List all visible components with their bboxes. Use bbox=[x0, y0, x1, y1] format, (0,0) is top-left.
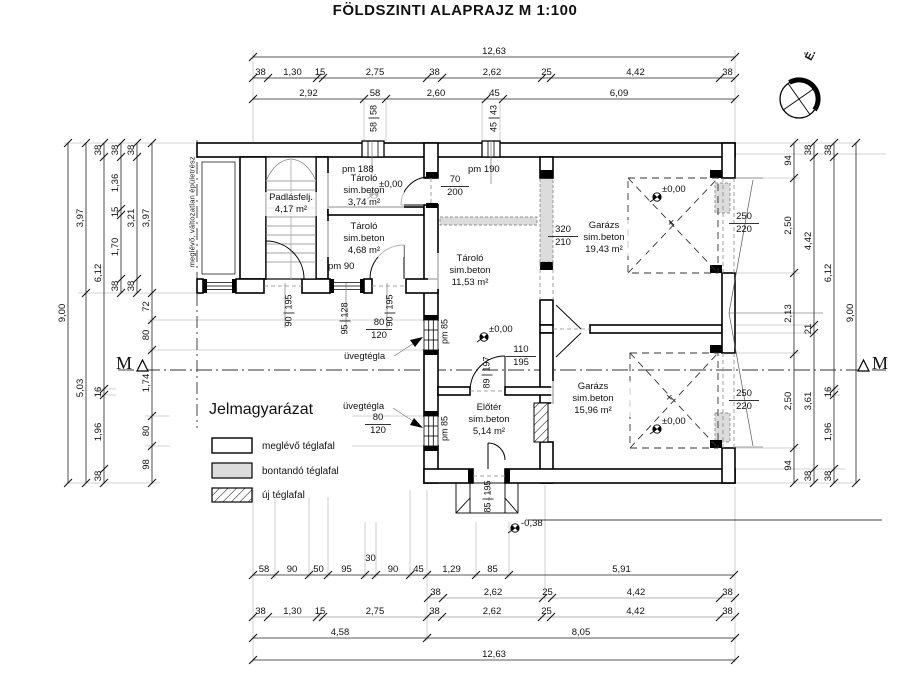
svg-text:38: 38 bbox=[429, 67, 440, 78]
level-zero-tarolo374: ±0,00 bbox=[379, 179, 403, 190]
opening-80-120-lower: 80 120 bbox=[365, 413, 391, 437]
room-eloter: Előtér sim.beton 5,14 m² bbox=[447, 402, 531, 438]
opening-250-220-lower: 250 220 bbox=[729, 389, 759, 413]
room-padlasfeljaro: Padlásfelj. 4,17 m² bbox=[258, 192, 324, 216]
svg-text:38: 38 bbox=[722, 67, 733, 78]
door-90-195-left: 90 195 bbox=[284, 293, 295, 329]
svg-text:3,97: 3,97 bbox=[141, 209, 152, 228]
level-zero-tarolo1153: ±0,00 bbox=[489, 324, 513, 335]
svg-text:1,74: 1,74 bbox=[141, 374, 152, 393]
floor-plan-sheet: 12,63381,30152,75382,62254,42382,92582,6… bbox=[0, 0, 909, 687]
svg-text:38: 38 bbox=[803, 145, 814, 156]
page-title: FÖLDSZINTI ALAPRAJZ M 1:100 bbox=[235, 2, 675, 20]
svg-text:16: 16 bbox=[823, 387, 834, 398]
svg-text:45: 45 bbox=[489, 88, 500, 99]
note-pm90: pm 90 bbox=[328, 261, 354, 272]
svg-text:2,60: 2,60 bbox=[427, 88, 446, 99]
svg-text:6,09: 6,09 bbox=[610, 88, 629, 99]
svg-text:45: 45 bbox=[413, 564, 424, 575]
note-pm190: pm 190 bbox=[468, 164, 500, 175]
legend-item-demolish: bontandó téglafal bbox=[262, 466, 339, 478]
svg-text:4,58: 4,58 bbox=[331, 627, 350, 638]
existing-building-note: meglévő, változatlan épületrész bbox=[188, 146, 196, 278]
svg-text:80: 80 bbox=[141, 426, 152, 437]
note-pm85-lower: pm 85 bbox=[441, 409, 450, 449]
legend-swatches bbox=[211, 437, 255, 503]
svg-text:90: 90 bbox=[287, 564, 298, 575]
svg-text:98: 98 bbox=[141, 459, 152, 470]
note-uvegtegla-1: üvegtégla bbox=[344, 351, 385, 362]
svg-text:50: 50 bbox=[313, 564, 324, 575]
svg-text:3,97: 3,97 bbox=[75, 209, 86, 228]
svg-text:94: 94 bbox=[783, 460, 794, 471]
svg-text:25: 25 bbox=[541, 606, 552, 617]
svg-text:1,30: 1,30 bbox=[283, 67, 302, 78]
svg-text:21: 21 bbox=[803, 324, 814, 335]
svg-text:1,96: 1,96 bbox=[823, 423, 834, 442]
svg-text:38: 38 bbox=[823, 145, 834, 156]
svg-text:38: 38 bbox=[93, 145, 104, 156]
svg-text:12,63: 12,63 bbox=[482, 46, 506, 57]
svg-text:4,42: 4,42 bbox=[626, 606, 645, 617]
level-zero-garazs1943: ±0,00 bbox=[662, 184, 686, 195]
window-glazing-lines bbox=[207, 283, 360, 290]
svg-text:12,63: 12,63 bbox=[482, 649, 506, 660]
svg-text:38: 38 bbox=[722, 606, 733, 617]
svg-text:4,42: 4,42 bbox=[803, 232, 814, 251]
svg-text:94: 94 bbox=[783, 155, 794, 166]
svg-text:5,03: 5,03 bbox=[75, 379, 86, 398]
svg-text:38: 38 bbox=[255, 606, 266, 617]
svg-text:38: 38 bbox=[429, 606, 440, 617]
svg-text:90: 90 bbox=[388, 564, 399, 575]
svg-text:38: 38 bbox=[110, 145, 121, 156]
chimney-45-43: 45 43 bbox=[489, 101, 500, 137]
svg-text:38: 38 bbox=[823, 471, 834, 482]
svg-text:3,61: 3,61 bbox=[803, 392, 814, 411]
room-tarolo-1153: Tároló sim.beton 11,53 m² bbox=[428, 253, 512, 289]
level-entrance: -0,38 bbox=[521, 518, 543, 529]
svg-text:15: 15 bbox=[315, 67, 326, 78]
legend-title: Jelmagyarázat bbox=[209, 400, 313, 419]
svg-text:2,75: 2,75 bbox=[366, 606, 385, 617]
garage-cross-2: × bbox=[666, 393, 672, 404]
room-tarolo-468: Tároló sim.beton 4,68 m² bbox=[324, 221, 404, 257]
section-triangle-right bbox=[858, 360, 869, 371]
note-pm188: pm 188 bbox=[342, 164, 374, 175]
svg-text:1,30: 1,30 bbox=[283, 606, 302, 617]
svg-text:58: 58 bbox=[370, 88, 381, 99]
uvegtegla-arrowhead-2 bbox=[410, 418, 423, 428]
svg-text:38: 38 bbox=[430, 587, 441, 598]
svg-text:1,29: 1,29 bbox=[442, 564, 461, 575]
level-zero-garazs1596: ±0,00 bbox=[662, 416, 686, 427]
svg-text:4,42: 4,42 bbox=[627, 587, 646, 598]
svg-text:2,62: 2,62 bbox=[483, 67, 502, 78]
svg-text:2,13: 2,13 bbox=[783, 304, 794, 323]
svg-text:1,96: 1,96 bbox=[93, 423, 104, 442]
section-triangle-left bbox=[137, 360, 148, 371]
door-leaf-89-197: 89 197 bbox=[482, 355, 493, 391]
svg-text:16: 16 bbox=[93, 387, 104, 398]
opening-320-210: 320 210 bbox=[548, 225, 578, 249]
svg-text:38: 38 bbox=[110, 281, 121, 292]
svg-text:30: 30 bbox=[365, 553, 376, 564]
svg-text:58: 58 bbox=[259, 564, 270, 575]
svg-text:9,00: 9,00 bbox=[57, 304, 68, 323]
svg-text:2,62: 2,62 bbox=[484, 587, 503, 598]
legend-item-existing: meglévő téglafal bbox=[262, 441, 335, 453]
svg-text:95: 95 bbox=[341, 564, 352, 575]
svg-text:6,12: 6,12 bbox=[823, 264, 834, 283]
garage-cross-1: × bbox=[668, 218, 674, 229]
svg-text:1,36: 1,36 bbox=[110, 174, 121, 193]
chimney-58-58: 58 58 bbox=[369, 101, 380, 137]
svg-text:9,00: 9,00 bbox=[845, 304, 856, 323]
svg-text:2,50: 2,50 bbox=[783, 216, 794, 235]
svg-text:85: 85 bbox=[487, 564, 498, 575]
svg-text:15: 15 bbox=[315, 606, 326, 617]
svg-text:5,91: 5,91 bbox=[612, 564, 631, 575]
svg-text:25: 25 bbox=[541, 67, 552, 78]
uvegtegla-arrowhead-1 bbox=[410, 337, 423, 347]
section-mark-left: M bbox=[116, 354, 132, 372]
legend-item-new: új téglafal bbox=[262, 490, 305, 502]
note-uvegtegla-2: üvegtégla bbox=[343, 401, 384, 412]
svg-text:6,12: 6,12 bbox=[93, 264, 104, 283]
svg-text:3,21: 3,21 bbox=[126, 209, 137, 228]
svg-text:25: 25 bbox=[542, 587, 553, 598]
svg-text:2,75: 2,75 bbox=[366, 67, 385, 78]
note-pm85-upper: pm 85 bbox=[441, 312, 450, 352]
svg-text:38: 38 bbox=[722, 587, 733, 598]
window-95-128: 95 128 bbox=[340, 301, 351, 337]
svg-text:15: 15 bbox=[110, 207, 121, 218]
north-compass-icon bbox=[780, 80, 818, 118]
svg-text:38: 38 bbox=[126, 281, 137, 292]
extension-lines bbox=[64, 50, 886, 663]
opening-70-200: 70 200 bbox=[441, 175, 469, 199]
svg-text:72: 72 bbox=[141, 301, 152, 312]
new-wall bbox=[534, 403, 548, 442]
door-90-195-right: 90 195 bbox=[385, 293, 396, 329]
entry-door-85-195: 85 195 bbox=[483, 479, 494, 515]
svg-text:1,70: 1,70 bbox=[110, 238, 121, 257]
svg-text:38: 38 bbox=[126, 145, 137, 156]
opening-250-220-upper: 250 220 bbox=[729, 212, 759, 236]
opening-110-195: 110 195 bbox=[506, 345, 536, 369]
existing-room-inner-face bbox=[202, 162, 235, 274]
svg-text:8,05: 8,05 bbox=[572, 627, 591, 638]
staircase bbox=[266, 157, 316, 279]
svg-text:2,92: 2,92 bbox=[299, 88, 318, 99]
svg-text:4,42: 4,42 bbox=[626, 67, 645, 78]
room-garazs-1596: Garázs sim.beton 15,96 m² bbox=[551, 381, 635, 417]
svg-text:38: 38 bbox=[93, 471, 104, 482]
dimension-chains: 12,63381,30152,75382,62254,42382,92582,6… bbox=[57, 46, 860, 664]
svg-text:80: 80 bbox=[141, 330, 152, 341]
svg-text:2,50: 2,50 bbox=[783, 392, 794, 411]
svg-text:2,62: 2,62 bbox=[483, 606, 502, 617]
svg-text:38: 38 bbox=[255, 67, 266, 78]
svg-text:38: 38 bbox=[803, 471, 814, 482]
floor-plan-drawing: 12,63381,30152,75382,62254,42382,92582,6… bbox=[0, 0, 909, 687]
section-mark-right: M bbox=[872, 354, 888, 372]
